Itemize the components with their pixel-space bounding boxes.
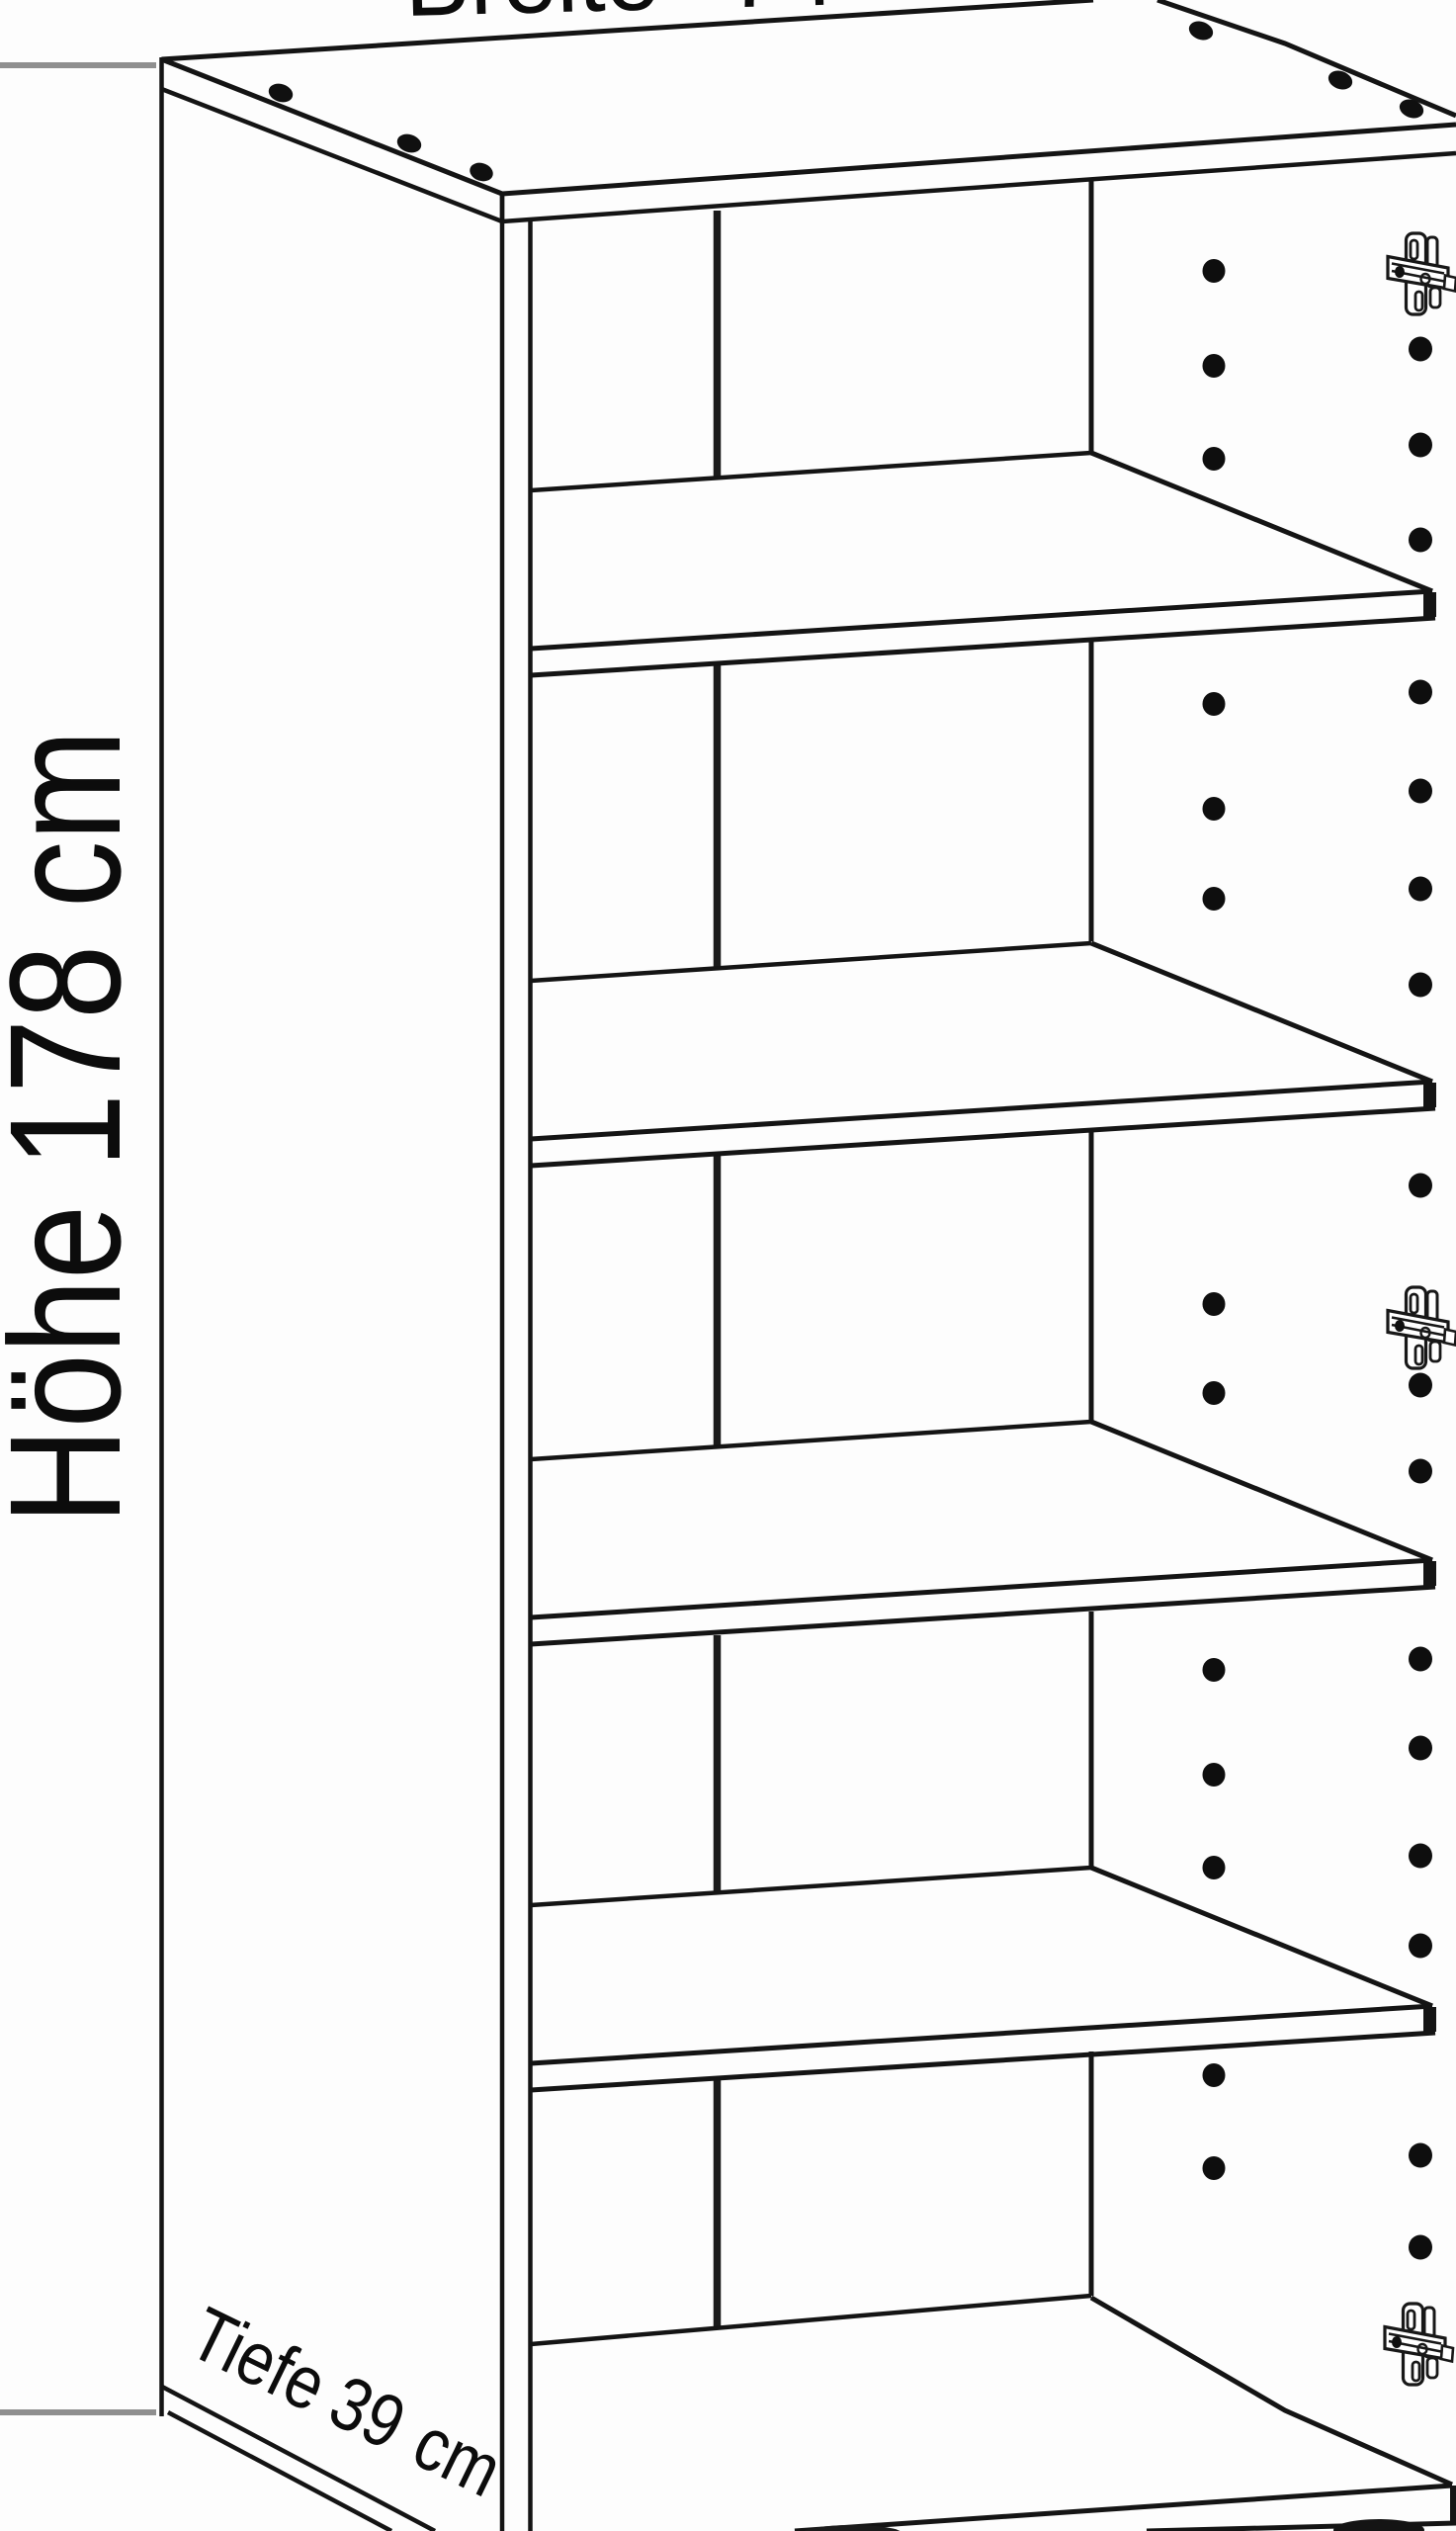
svg-text:Höhe 178 cm: Höhe 178 cm bbox=[0, 730, 154, 1525]
